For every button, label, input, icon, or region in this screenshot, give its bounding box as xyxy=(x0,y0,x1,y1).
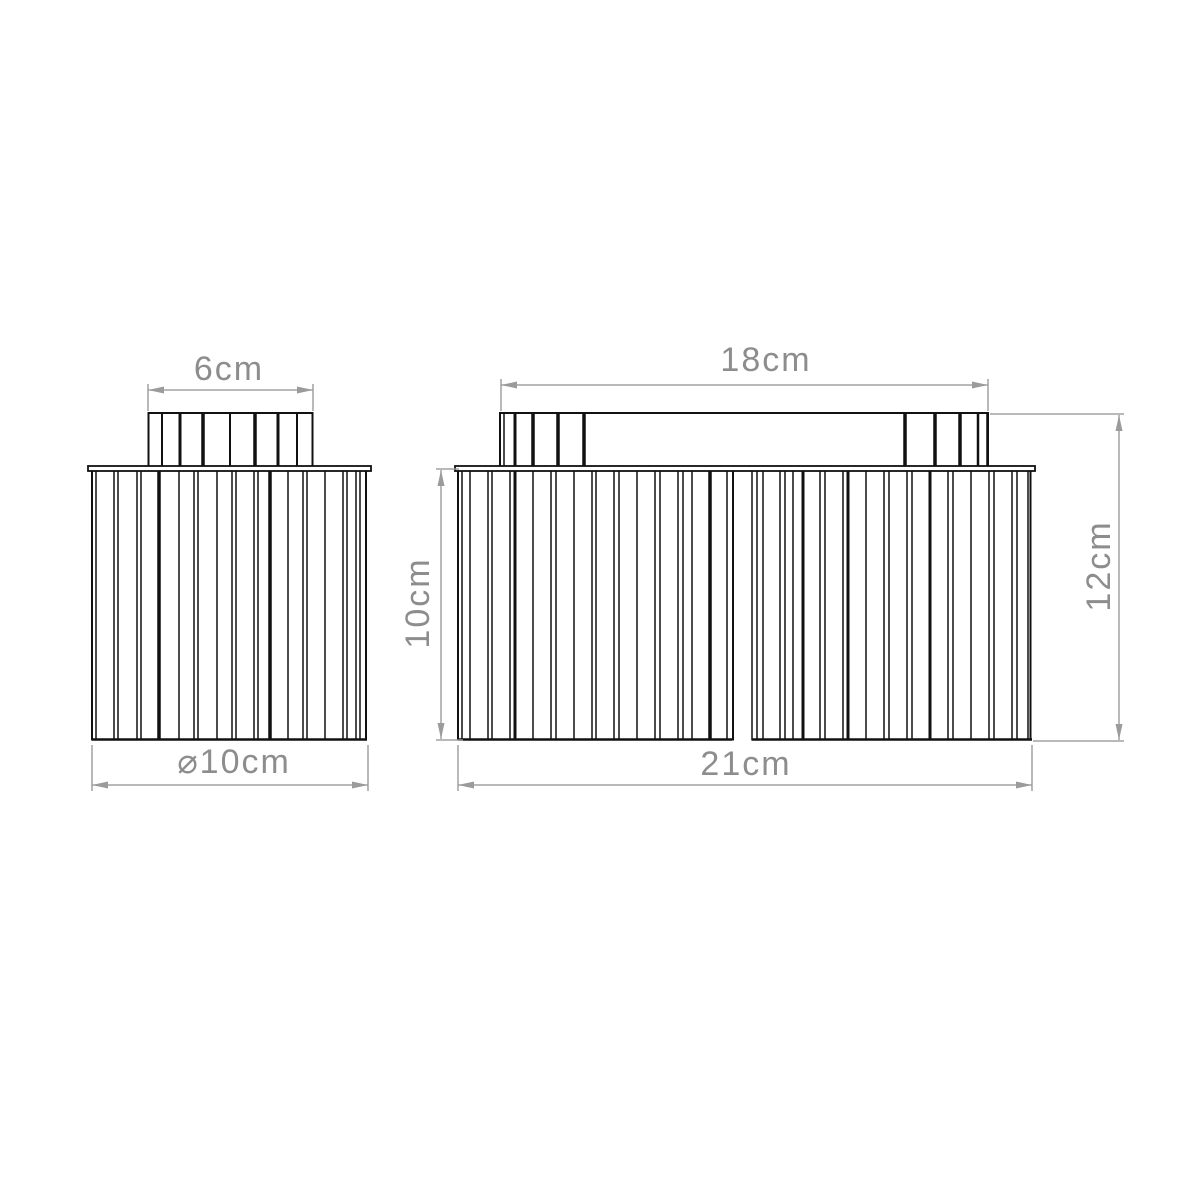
dimension-line xyxy=(501,384,988,385)
shade-pleat-line xyxy=(324,471,326,741)
shade-pleat-line xyxy=(993,471,995,741)
shade-pleat-line xyxy=(268,471,272,741)
dimension-line xyxy=(148,389,313,390)
shade-pleat-line xyxy=(216,471,218,741)
dimension-label-shade-height: 10cm xyxy=(401,557,435,648)
shade-pleat-line xyxy=(751,471,753,741)
shade-pleat-line xyxy=(802,471,805,741)
extension-line xyxy=(436,739,463,740)
shade-pleat-line xyxy=(95,471,97,741)
dimension-arrowhead xyxy=(297,387,313,394)
shade-pleat-line xyxy=(883,471,885,741)
shade-pleat-line xyxy=(911,471,913,741)
shade-pleat-line xyxy=(595,471,597,741)
shade-pleat-line xyxy=(1011,471,1013,741)
shade-pleat-line xyxy=(509,471,511,741)
shade-pleat-line xyxy=(253,471,255,741)
canopy-outline xyxy=(500,413,988,467)
shade-pleat-line xyxy=(461,471,463,741)
shade-pleat-line xyxy=(677,471,679,741)
shade-pleat-line xyxy=(197,471,199,741)
dimension-label-total-height: 12cm xyxy=(1082,520,1116,611)
rib-line xyxy=(277,414,280,466)
shade-pleat-line xyxy=(491,471,493,741)
shade-pleat-line xyxy=(346,471,348,741)
rib-line xyxy=(229,414,231,466)
shade-pleat-line xyxy=(1027,471,1029,741)
rib-line xyxy=(986,414,988,466)
shade-bottom-edge xyxy=(92,738,367,741)
dimension-label-canopy-width: 18cm xyxy=(720,343,811,377)
rib-line xyxy=(958,414,962,466)
rib-line xyxy=(201,414,205,466)
dimension-line xyxy=(1118,415,1119,740)
shade-pleat-line xyxy=(231,471,233,741)
shade-pleat-line xyxy=(136,471,138,741)
dimension-label-shade-diameter: ⌀10cm xyxy=(177,745,291,779)
extension-line xyxy=(312,384,313,411)
dimension-line xyxy=(458,784,1032,785)
technical-drawing: 6cm 18cm ⌀10cm 21cm 10cm 12cm xyxy=(0,0,1200,1200)
shade-pleat-line xyxy=(306,471,308,741)
extension-line xyxy=(1033,740,1124,741)
rib-line xyxy=(977,414,980,466)
shade-pleat-line xyxy=(514,471,517,741)
extension-line xyxy=(1031,745,1032,791)
extension-line xyxy=(91,745,92,791)
shade-pleat-line xyxy=(952,471,954,741)
dimension-arrowhead xyxy=(501,382,517,389)
extension-line xyxy=(367,745,368,791)
shade-pleat-line xyxy=(865,471,867,741)
shade-pleat-line xyxy=(792,471,794,741)
shade-pleat-line xyxy=(487,471,489,741)
extension-line xyxy=(500,379,501,411)
shade-pleat-line xyxy=(618,471,620,741)
shade-pleat-line xyxy=(732,471,734,741)
dimension-arrowhead xyxy=(438,470,445,486)
shade-pleat-line xyxy=(193,471,195,741)
shade-pleat-line xyxy=(906,471,908,741)
shade-pleat-line xyxy=(469,471,471,741)
shade-bottom-edge xyxy=(458,738,732,741)
shade-pleat-line xyxy=(178,471,180,741)
shade-pleat-line xyxy=(257,471,259,741)
extension-line xyxy=(436,468,459,469)
shade-pleat-line xyxy=(573,471,575,741)
dimension-label-total-width: 21cm xyxy=(700,747,791,781)
dimension-arrowhead xyxy=(352,782,368,789)
shade-pleat-line xyxy=(1030,471,1032,741)
dimension-line xyxy=(92,784,368,785)
shade-pleat-line xyxy=(654,471,656,741)
dimension-arrowhead xyxy=(92,782,108,789)
shade-pleat-line xyxy=(988,471,990,741)
shade-pleat-line xyxy=(947,471,949,741)
drawing-svg xyxy=(0,0,1200,1200)
single-shade-view xyxy=(88,413,371,741)
rib-line xyxy=(903,414,907,466)
extension-line xyxy=(987,379,988,411)
shade-pleat-line xyxy=(287,471,289,741)
shade-pleat-line xyxy=(847,471,850,741)
shade-pleat-line xyxy=(779,471,781,741)
shade-pleat-line xyxy=(550,471,552,741)
shade-pleat-line xyxy=(342,471,344,741)
shade-pleat-line xyxy=(636,471,638,741)
shade-pleat-line xyxy=(819,471,821,741)
shade-pleat-line xyxy=(691,471,693,741)
rib-line xyxy=(503,414,505,466)
shade-pleat-line xyxy=(726,471,728,741)
shade-pleat-line xyxy=(682,471,684,741)
dimension-arrowhead xyxy=(438,723,445,739)
shade-pleat-line xyxy=(532,471,534,741)
shade-pleat-line xyxy=(762,471,764,741)
extension-line xyxy=(147,384,148,411)
rib-line xyxy=(556,414,560,466)
shade-pleat-line xyxy=(591,471,593,741)
shade-pleat-line xyxy=(659,471,661,741)
extension-line xyxy=(457,745,458,791)
dimension-arrowhead xyxy=(972,382,988,389)
shade-pleat-line xyxy=(824,471,826,741)
shade-pleat-line xyxy=(359,471,361,741)
shade-pleat-line xyxy=(302,471,304,741)
shade-pleat-line xyxy=(555,471,557,741)
rib-line xyxy=(514,414,517,466)
dimension-arrowhead xyxy=(458,782,474,789)
shade-pleat-line xyxy=(457,471,459,741)
shade-pleat-line xyxy=(613,471,615,741)
rib-line xyxy=(933,414,937,466)
shade-pleat-line xyxy=(157,471,161,741)
double-shade-view xyxy=(455,413,1035,741)
dimension-label-neck-width: 6cm xyxy=(194,352,264,386)
shade-pleat-line xyxy=(91,471,93,741)
shade-pleat-line xyxy=(708,471,712,741)
shade-pleat-line xyxy=(842,471,844,741)
dimension-arrowhead xyxy=(1016,782,1032,789)
extension-line xyxy=(990,413,1124,414)
rib-line xyxy=(531,414,535,466)
shade-pleat-line xyxy=(784,471,786,741)
rib-line xyxy=(582,414,586,466)
shade-pleat-line xyxy=(929,471,932,741)
mounting-lip xyxy=(455,466,1035,471)
rib-line xyxy=(161,414,163,466)
rib-line xyxy=(179,414,182,466)
shade-pleat-line xyxy=(140,471,142,741)
shade-pleat-line xyxy=(235,471,237,741)
shade-pleat-line xyxy=(355,471,357,741)
rib-line xyxy=(253,414,257,466)
rib-line xyxy=(296,414,298,466)
shade-bottom-edge xyxy=(752,738,1032,741)
shade-pleat-line xyxy=(117,471,119,741)
shade-pleat-line xyxy=(113,471,115,741)
dimension-arrowhead xyxy=(148,387,164,394)
dimension-arrowhead xyxy=(1116,724,1123,740)
shade-pleat-line xyxy=(756,471,758,741)
shade-pleat-line xyxy=(970,471,972,741)
shade-pleat-line xyxy=(1016,471,1018,741)
dimension-arrowhead xyxy=(1116,415,1123,431)
shade-pleat-line xyxy=(888,471,890,741)
dimension-line xyxy=(440,470,441,739)
mounting-lip xyxy=(88,466,371,471)
shade-pleat-line xyxy=(365,471,367,741)
